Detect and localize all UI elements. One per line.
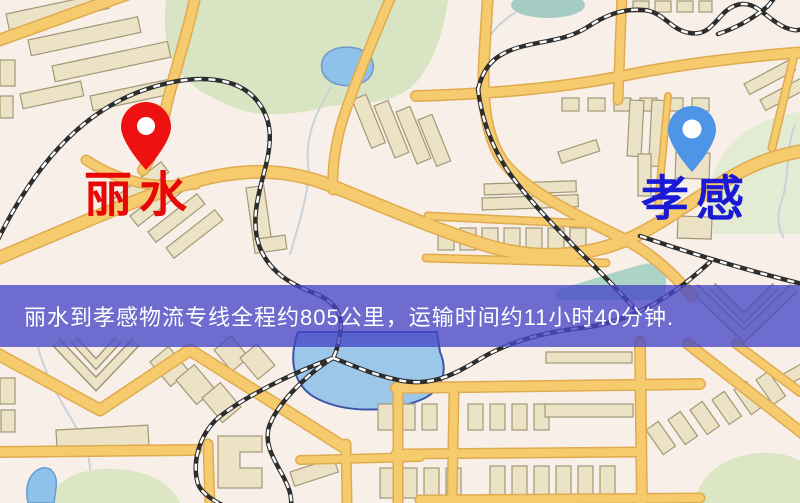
route-info-text: 丽水到孝感物流专线全程约805公里，运输时间约11小时40分钟. bbox=[24, 300, 674, 332]
map-canvas[interactable] bbox=[0, 0, 800, 503]
map-viewport[interactable]: 丽水 孝感 丽水到孝感物流专线全程约805公里，运输时间约11小时40分钟. bbox=[0, 0, 800, 503]
route-info-banner: 丽水到孝感物流专线全程约805公里，运输时间约11小时40分钟. bbox=[0, 285, 800, 347]
